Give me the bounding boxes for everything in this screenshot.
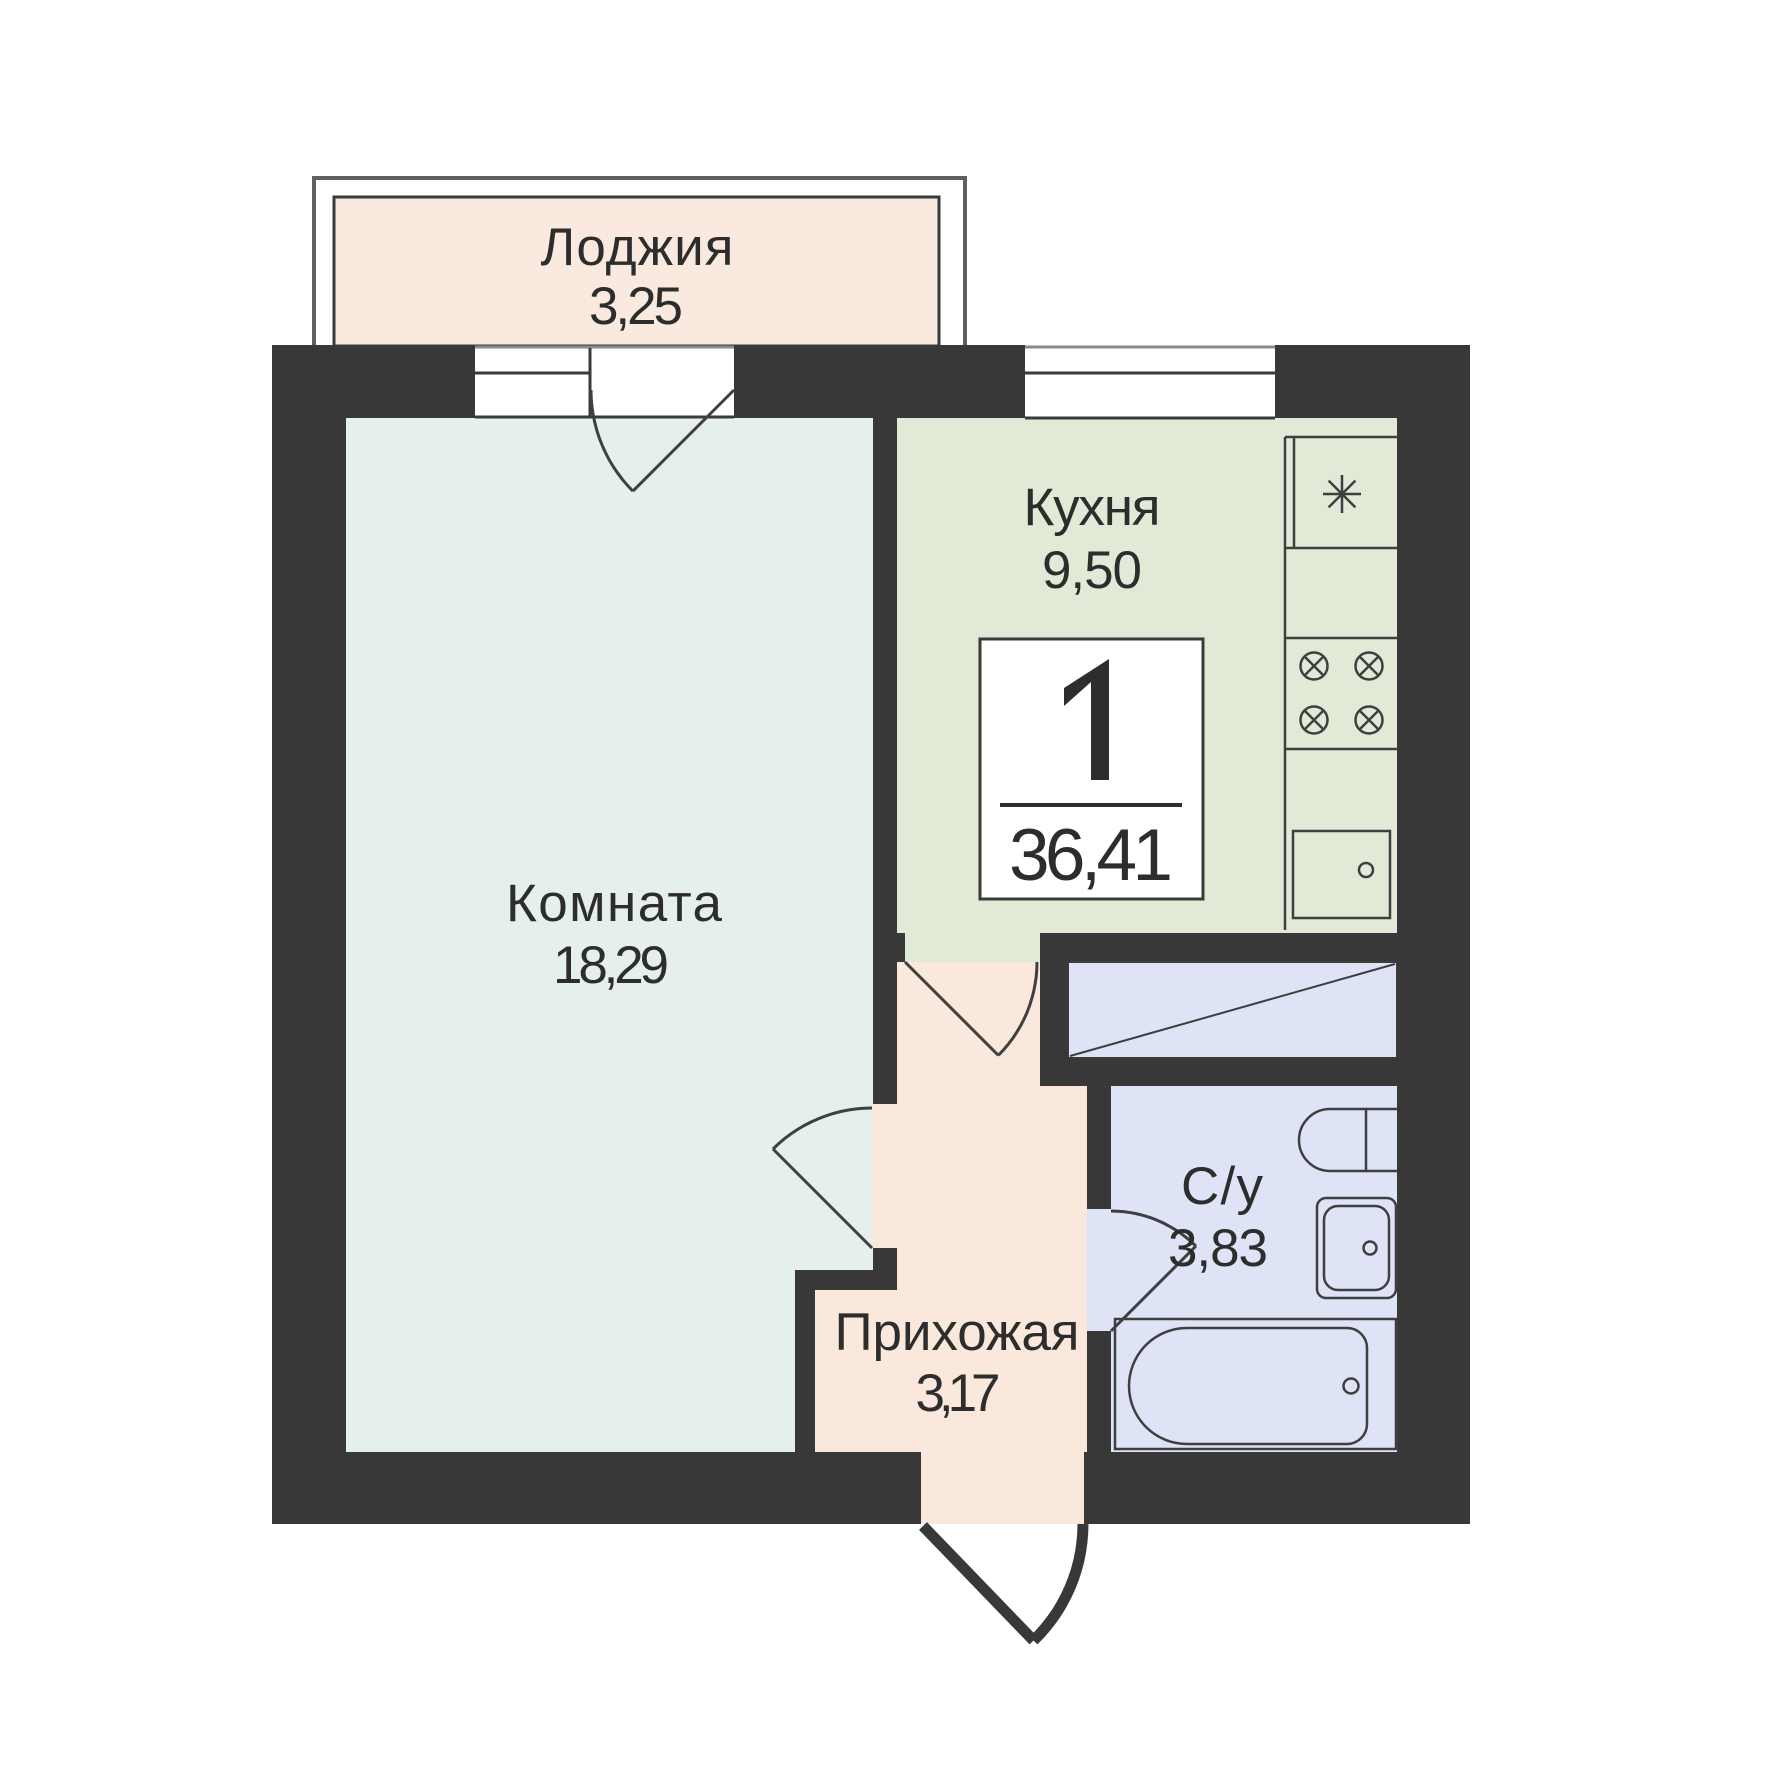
svg-text:Прихожая: Прихожая	[835, 1303, 1080, 1362]
svg-text:С/у: С/у	[1181, 1157, 1264, 1216]
svg-text:18,29: 18,29	[553, 936, 669, 995]
svg-text:Кухня: Кухня	[1024, 478, 1161, 537]
svg-text:36,41: 36,41	[1009, 815, 1173, 896]
svg-text:3,25: 3,25	[589, 277, 683, 336]
svg-text:3,83: 3,83	[1168, 1219, 1268, 1278]
svg-text:3,17: 3,17	[916, 1364, 1001, 1423]
svg-text:9,50: 9,50	[1042, 541, 1142, 600]
svg-text:Комната: Комната	[506, 874, 723, 933]
svg-text:Лоджия: Лоджия	[541, 218, 734, 277]
